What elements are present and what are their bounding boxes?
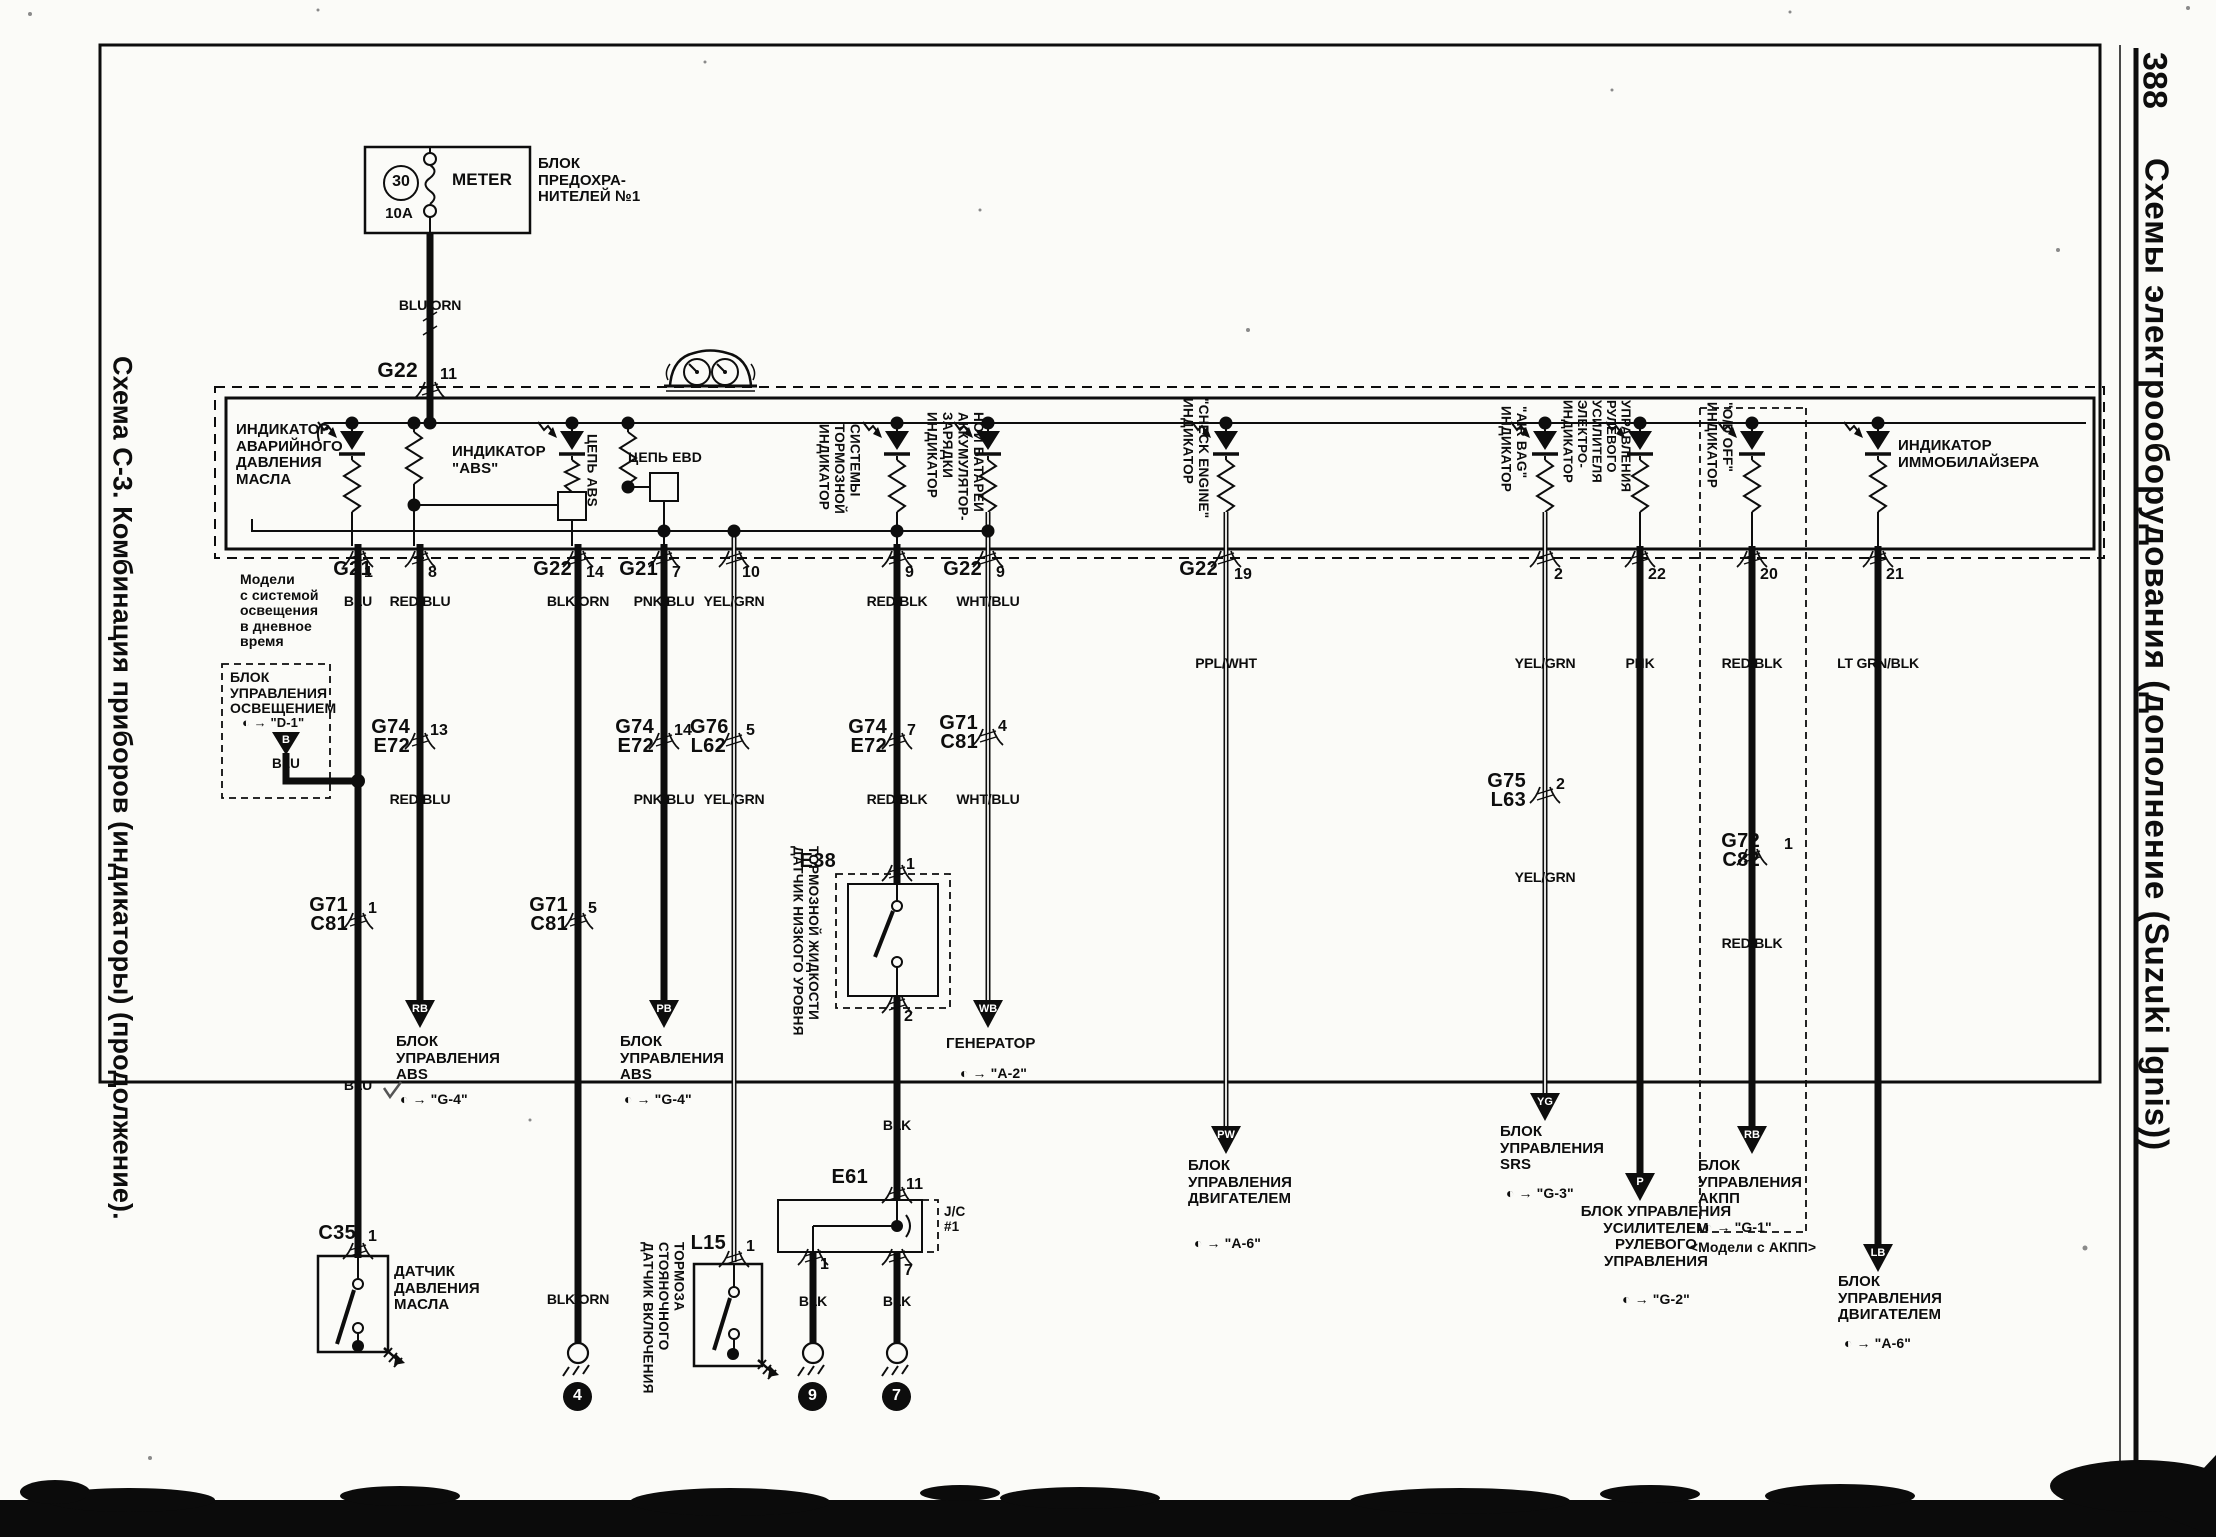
scan-smudge: [0, 1455, 2216, 1537]
conn-g22-a: G22: [528, 560, 572, 579]
e61-out2-color: BLK: [849, 1294, 945, 1309]
w2-destination: БЛОК УПРАВЛЕНИЯ ABS: [396, 1034, 500, 1084]
page-number: 388: [2146, 52, 2163, 109]
abs-indicator-label: ИНДИКАТОР "ABS": [452, 444, 546, 477]
pin-10: 10: [742, 564, 760, 581]
pin-20: 20: [1760, 566, 1778, 583]
airbag-indicator-label: ИНДИКАТОР "AIR BAG": [1498, 406, 1529, 492]
conn-g21-b: G21: [614, 560, 658, 579]
ground-4: 4: [563, 1382, 592, 1411]
l15-switch: [694, 1264, 779, 1379]
w9-destination: БЛОК УПРАВЛЕНИЯ SRS: [1500, 1124, 1604, 1174]
w11-color: RED/BLK: [1704, 656, 1800, 671]
w7-connector-pin: 4: [998, 718, 1007, 735]
right-margin-title: Схемы электрооборудования (дополнение (S…: [2148, 158, 2165, 1151]
w8-triangle-code: PW: [1211, 1129, 1241, 1141]
w8-ref: ◐ → "A-6": [1194, 1236, 1261, 1252]
w12-ref: ◐ → "A-6": [1844, 1336, 1911, 1352]
w11-destination: БЛОК УПРАВЛЕНИЯ АКПП: [1698, 1158, 1802, 1208]
e38-pin-top: 1: [906, 856, 915, 873]
e38-pin-bottom: 2: [904, 1008, 913, 1025]
w11-triangle-code: RB: [1737, 1129, 1767, 1141]
lighting-triangle-code: B: [271, 734, 301, 746]
dtrl-note: Модели с системой освещения в дневное вр…: [240, 572, 319, 650]
w8-color: PPL/WHT: [1178, 656, 1274, 671]
g22-top-connector: G22: [358, 362, 418, 381]
ground-9: 9: [798, 1382, 827, 1411]
left-margin-title: Схема С-3. Комбинация приборов (индикато…: [114, 356, 131, 1220]
w9-connector-pin: 2: [1556, 776, 1565, 793]
w2-color: RED/BLU: [372, 594, 468, 609]
w11-ref: ◐ → "G-1": [1704, 1220, 1772, 1236]
w6-connector: G74 E72: [827, 718, 887, 755]
immobilizer-indicator-label: ИНДИКАТОР ИММОБИЛАЙЗЕРА: [1898, 438, 2039, 471]
pin-14: 14: [586, 564, 604, 581]
w5-color-2: YEL/GRN: [686, 792, 782, 807]
w7-color: WHT/BLU: [940, 594, 1036, 609]
e38-name: ДАТЧИК НИЗКОГО УРОВНЯ ТОРМОЗНОЙ ЖИДКОСТИ: [790, 846, 821, 1036]
w10-color: PNK: [1592, 656, 1688, 671]
w5-connector: G76 L62: [690, 718, 726, 755]
lighting-wire-color: BLU: [263, 756, 309, 773]
w2-triangle-code: RB: [405, 1003, 435, 1015]
e61-junction: [778, 1200, 938, 1252]
w7-destination: ГЕНЕРАТОР: [946, 1036, 1035, 1053]
w3-connector: G71 C81: [508, 896, 568, 933]
w6-color-2: RED/BLK: [849, 792, 945, 807]
eps-indicator-label: ИНДИКАТОР ЭЛЕКТРО- УСИЛИТЕЛЯ РУЛЕВОГО УП…: [1560, 400, 1633, 492]
w9-connector: G75 L63: [1466, 772, 1526, 809]
w4-triangle-code: PB: [649, 1003, 679, 1015]
e61-pin: 11: [906, 1176, 923, 1193]
pin-8: 8: [428, 564, 437, 581]
w2-color-2: RED/BLU: [372, 792, 468, 807]
w8-destination: БЛОК УПРАВЛЕНИЯ ДВИГАТЕЛЕМ: [1188, 1158, 1292, 1208]
pin-19: 19: [1234, 566, 1252, 583]
pin-2: 2: [1554, 566, 1563, 583]
w6-color: RED/BLK: [849, 594, 945, 609]
ground-symbols: [563, 1343, 908, 1376]
w9-color: YEL/GRN: [1497, 656, 1593, 671]
c35-connector: C35: [296, 1224, 356, 1243]
w2-connector: G74 E72: [350, 718, 410, 755]
w1-connector: G71 C81: [288, 896, 348, 933]
ebd-circuit-label: ЦЕПЬ EBD: [628, 450, 702, 466]
fuse-rating: 10A: [375, 206, 423, 223]
destination-triangles: [272, 732, 1893, 1272]
w3-color-2: BLK/ORN: [530, 1292, 626, 1307]
w7-triangle-code: WB: [973, 1003, 1003, 1015]
l15-pin: 1: [746, 1238, 755, 1255]
pin-9b: 9: [996, 564, 1005, 581]
w3-connector-pin: 5: [588, 900, 597, 917]
w7-connector: G71 C81: [918, 714, 978, 751]
w9-triangle-code: YG: [1530, 1096, 1560, 1108]
e61-connector: E61: [808, 1168, 868, 1187]
w2-connector-pin: 13: [430, 722, 448, 739]
w4-ref: ◐ → "G-4": [624, 1092, 692, 1108]
ground-7: 7: [882, 1382, 911, 1411]
w2-ref: ◐ → "G-4": [400, 1092, 468, 1108]
od-off-indicator-label: ИНДИКАТОР "O/D OFF": [1704, 402, 1735, 488]
w9-ref: ◐ → "G-3": [1506, 1186, 1574, 1202]
manual-page: 388 Схемы электрооборудования (дополнени…: [0, 0, 2216, 1537]
w4-destination: БЛОК УПРАВЛЕНИЯ ABS: [620, 1034, 724, 1084]
e61-out2-pin: 7: [904, 1262, 913, 1279]
w10-ref: ◐ → "G-2": [1566, 1292, 1746, 1308]
w1-color-2: BLU: [310, 1078, 406, 1093]
oil-indicator-label: ИНДИКАТОР АВАРИЙНОГО ДАВЛЕНИЯ МАСЛА: [236, 422, 343, 488]
w11-connector-pin: 1: [1784, 836, 1793, 853]
conn-g22-c: G22: [1170, 560, 1218, 579]
w12-destination: БЛОК УПРАВЛЕНИЯ ДВИГАТЕЛЕМ: [1838, 1274, 1942, 1324]
lighting-ref: ◐ → "D-1": [242, 716, 304, 731]
jc-label: J/C #1: [944, 1204, 965, 1234]
check-engine-indicator-label: ИНДИКАТОР "CHECK ENGINE": [1180, 398, 1211, 519]
fuse-wire-color: BLU/ORN: [382, 298, 478, 313]
w12-triangle-code: LB: [1863, 1247, 1893, 1259]
w5-connector-pin: 5: [746, 722, 755, 739]
w10-destination: БЛОК УПРАВЛЕНИЯ УСИЛИТЕЛЕМ РУЛЕВОГО УПРА…: [1566, 1204, 1746, 1270]
indicator-chains: [318, 422, 1891, 546]
fuse-block-label: БЛОК ПРЕДОХРА- НИТЕЛЕЙ №1: [538, 156, 640, 206]
e61-out1-pin: 1: [820, 1256, 829, 1273]
e61-out1-color: BLK: [765, 1294, 861, 1309]
w9-color-2: YEL/GRN: [1497, 870, 1593, 885]
w5-color: YEL/GRN: [686, 594, 782, 609]
w12-color: LT GRN/BLK: [1814, 656, 1942, 671]
w6-connector-pin: 7: [907, 722, 916, 739]
pin-9: 9: [905, 564, 914, 581]
bus-line-bottom: [252, 519, 988, 531]
brake-indicator-label: ИНДИКАТОР ТОРМОЗНОЙ СИСТЕМЫ: [816, 424, 863, 514]
w11-color-2: RED/BLK: [1704, 936, 1800, 951]
l15-name: ДАТЧИК ВКЛЮЧЕНИЯ СТОЯНОЧНОГО ТОРМОЗА: [640, 1242, 687, 1394]
w3-color: BLK/ORN: [530, 594, 626, 609]
w11-connector: G72 C82: [1700, 832, 1760, 869]
pin-22: 22: [1648, 566, 1666, 583]
pin-7: 7: [672, 564, 681, 581]
w1-connector-pin: 1: [368, 900, 377, 917]
w6-color-3: BLK: [849, 1118, 945, 1133]
conn-g21-a: G21: [330, 560, 372, 579]
fuse-number-circle: 30: [383, 165, 419, 201]
w10-triangle-code: P: [1625, 1176, 1655, 1188]
c35-pin: 1: [368, 1228, 377, 1245]
w4-connector: G74 E72: [594, 718, 654, 755]
at-models-note: <Модели с АКПП>: [1686, 1240, 1820, 1256]
battery-indicator-label: ИНДИКАТОР ЗАРЯДКИ АККУМУЛЯТОР- НОЙ БАТАР…: [924, 412, 986, 521]
g22-top-pin: 11: [440, 366, 457, 383]
e38-sensor: [836, 874, 950, 1008]
fuse-name: METER: [452, 172, 512, 189]
w7-ref: ◐ → "A-2": [960, 1066, 1027, 1082]
conn-g22-b: G22: [934, 560, 982, 579]
abs-circuit-label: ЦЕПЬ ABS: [584, 434, 600, 507]
c35-name: ДАТЧИК ДАВЛЕНИЯ МАСЛА: [394, 1264, 480, 1314]
w7-color-2: WHT/BLU: [940, 792, 1036, 807]
instrument-cluster-icon: [664, 351, 757, 392]
lighting-control-title: БЛОК УПРАВЛЕНИЯ ОСВЕЩЕНИЕМ: [230, 670, 336, 717]
pin-21: 21: [1886, 566, 1904, 583]
